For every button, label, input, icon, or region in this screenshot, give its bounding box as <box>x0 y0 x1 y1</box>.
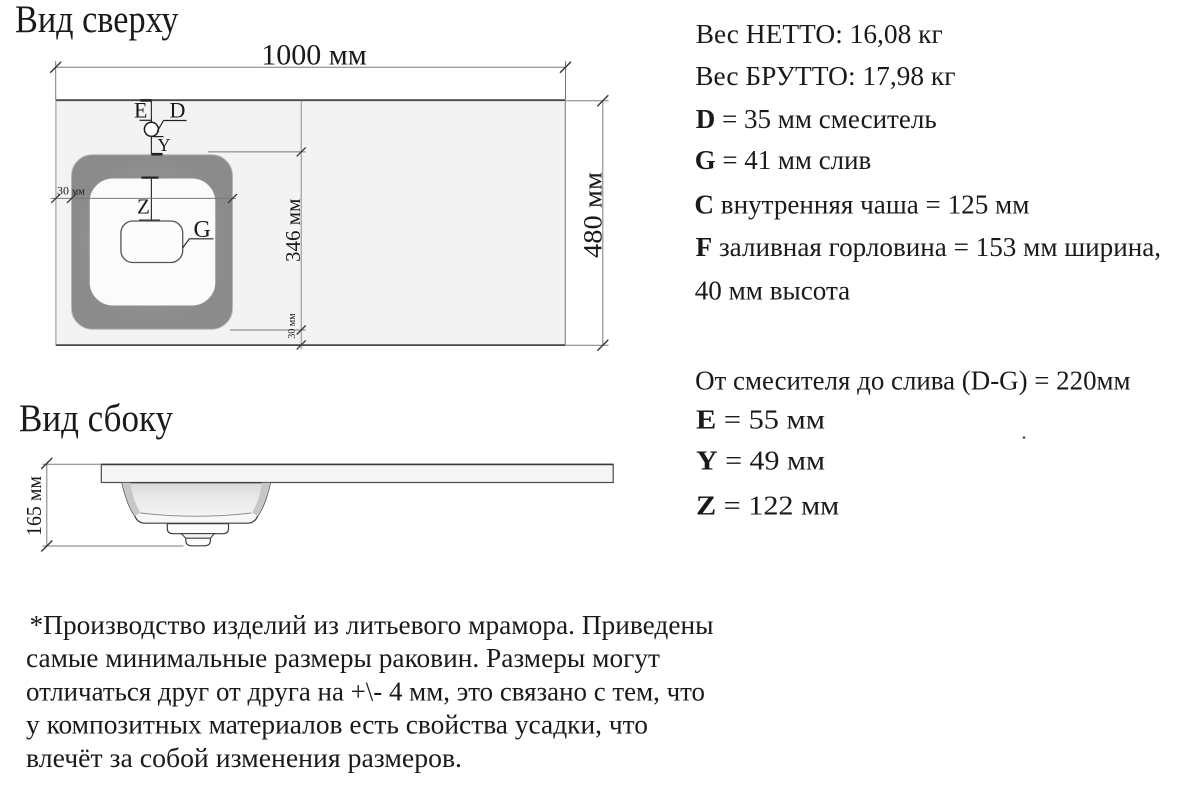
svg-text:*Производство изделий из литье: *Производство изделий из литьевого мрамо… <box>30 610 714 640</box>
svg-text:G = 41 мм слив: G = 41 мм слив <box>695 144 872 175</box>
svg-text:D: D <box>170 98 186 123</box>
svg-text:480 мм: 480 мм <box>579 172 608 258</box>
svg-text:Вид сверху: Вид сверху <box>15 0 179 41</box>
svg-text:30 мм: 30 мм <box>57 184 85 198</box>
svg-text:у композитных материалов есть: у композитных материалов есть свойства у… <box>26 710 648 740</box>
svg-text:C внутренняя чаша = 125 мм: C внутренняя чаша = 125 мм <box>694 189 1029 220</box>
svg-text:отличаться друг от друга на +\: отличаться друг от друга на +\- 4 мм, эт… <box>26 676 705 706</box>
svg-text:165 мм: 165 мм <box>22 476 46 536</box>
svg-text:D = 35 мм смеситель: D = 35 мм смеситель <box>696 103 937 134</box>
svg-text:влечёт за собой изменения разм: влечёт за собой изменения размеров. <box>26 743 462 773</box>
svg-text:Z = 122 мм: Z = 122 мм <box>696 490 839 521</box>
svg-text:Y = 49 мм: Y = 49 мм <box>696 445 825 476</box>
svg-text:самые минимальные размеры рако: самые минимальные размеры раковин. Разме… <box>26 643 660 673</box>
svg-text:346 мм: 346 мм <box>281 199 305 262</box>
svg-text:От смесителя до слива (D-G) =: От смесителя до слива (D-G) = 220мм <box>695 365 1131 396</box>
svg-text:F заливная горловина = 153 мм: F заливная горловина = 153 мм ширина, <box>696 231 1162 262</box>
svg-text:Вес НЕТТО: 16,08 кг: Вес НЕТТО: 16,08 кг <box>696 18 943 49</box>
svg-text:Вес БРУТТО: 17,98 кг: Вес БРУТТО: 17,98 кг <box>695 60 955 91</box>
svg-text:E: E <box>134 98 147 123</box>
svg-text:Y: Y <box>158 135 171 155</box>
svg-text:1000 мм: 1000 мм <box>261 39 366 72</box>
svg-text:30 мм: 30 мм <box>287 313 298 339</box>
svg-text:Вид сбоку: Вид сбоку <box>19 397 173 440</box>
svg-text:40 мм высота: 40 мм высота <box>695 274 851 305</box>
svg-text:E = 55 мм: E = 55 мм <box>696 403 825 434</box>
